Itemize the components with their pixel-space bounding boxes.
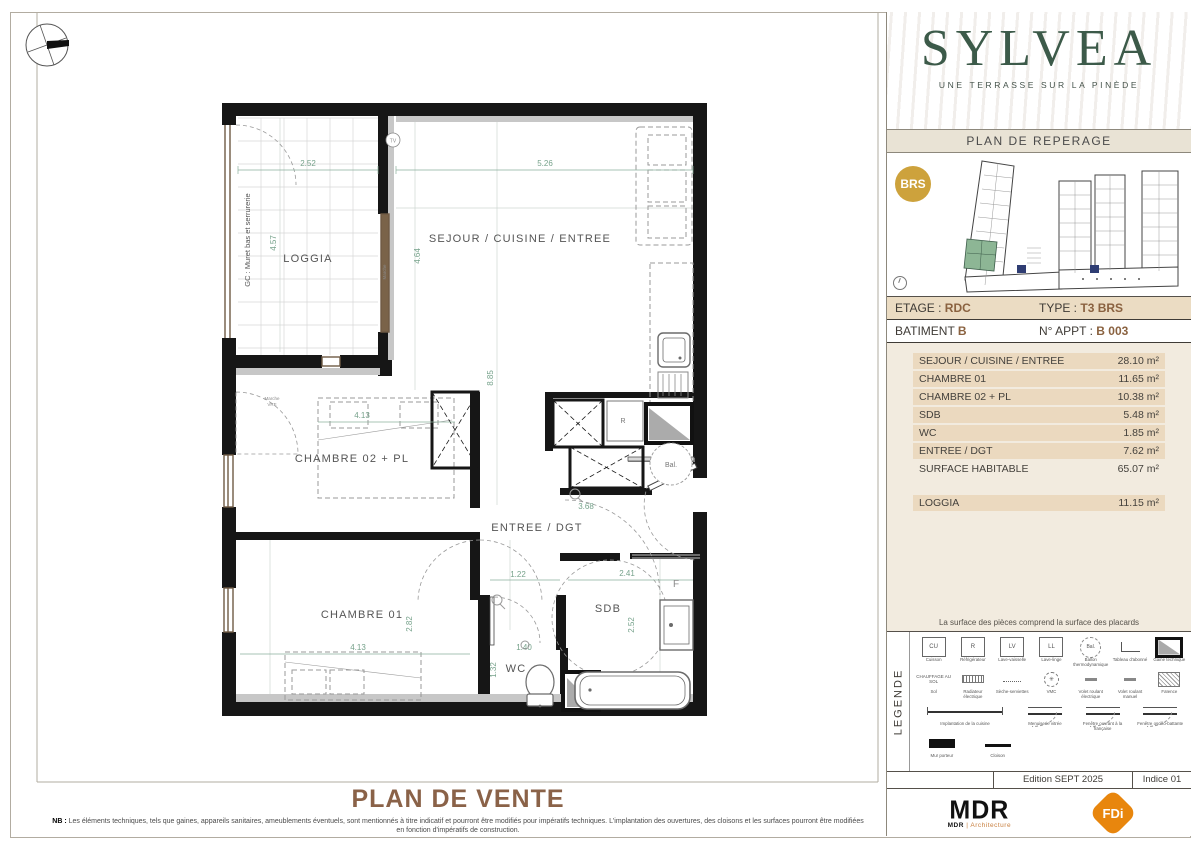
label-f: F bbox=[673, 579, 679, 590]
legend-panel: LEGENDE CUCuisson RRéfrigérateur LVLave-… bbox=[887, 632, 1191, 772]
type-label: TYPE : bbox=[1039, 301, 1077, 315]
label-sdb: SDB bbox=[595, 603, 621, 615]
edition-indice: Indice 01 bbox=[1133, 772, 1191, 788]
dishwasher-icon: LV bbox=[1000, 637, 1024, 657]
bed-chambre02 bbox=[318, 398, 454, 498]
batiment-label: BATIMENT bbox=[895, 324, 955, 338]
edition-bar: Edition SEPT 2025 Indice 01 bbox=[887, 772, 1191, 789]
mdr-logo-mark: MDR bbox=[948, 797, 1011, 822]
fdi-logo: FDi bbox=[1089, 789, 1137, 837]
bottom-strip: PLAN DE VENTE NB : Les éléments techniqu… bbox=[38, 783, 878, 835]
table-row: WC1.85 m² bbox=[913, 425, 1165, 441]
dim-wc-h: 1.32 bbox=[489, 662, 498, 678]
partition-icon bbox=[985, 744, 1011, 747]
miniplan-drawing bbox=[887, 153, 1189, 294]
dim-loggia-h: 4.57 bbox=[269, 235, 278, 251]
nb-note: NB : Les éléments techniques, tels que g… bbox=[38, 817, 878, 835]
table-row-total: SURFACE HABITABLE65.07 m² bbox=[913, 461, 1165, 477]
shutter-electric-icon bbox=[1085, 678, 1097, 681]
brs-badge: BRS bbox=[895, 166, 931, 202]
etage-type-row: ETAGE : RDC TYPE : T3 BRS bbox=[887, 297, 1191, 320]
misc-symbols bbox=[492, 489, 583, 649]
sheet-title: PLAN DE VENTE bbox=[38, 785, 878, 814]
radiator-icon bbox=[962, 675, 984, 683]
dim-sejour-h2: 8.85 bbox=[486, 370, 495, 386]
plan-frame bbox=[37, 12, 878, 782]
floorplan-drawing: LOGGIA SEJOUR / CUISINE / ENTREE CHAMBRE… bbox=[0, 0, 884, 848]
loggia-tiles bbox=[238, 118, 378, 355]
sanitary bbox=[526, 600, 693, 709]
type-value: T3 BRS bbox=[1080, 301, 1123, 315]
loggia-railing bbox=[225, 125, 230, 338]
glazing-icon bbox=[1028, 707, 1062, 715]
dim-ch1-w: 4.13 bbox=[350, 643, 366, 652]
label-fridge: R bbox=[620, 418, 625, 425]
washer-icon: LL bbox=[1039, 637, 1063, 657]
dim-kitchen: 3.68 bbox=[578, 502, 594, 511]
table-row: CHAMBRE 02 + PL10.38 m² bbox=[913, 389, 1165, 405]
kitchen bbox=[650, 263, 693, 403]
tv-outlet-icon: TV bbox=[386, 133, 400, 147]
label-wc: WC bbox=[506, 663, 527, 675]
etage-label: ETAGE : bbox=[895, 301, 941, 315]
window-french-icon bbox=[1086, 707, 1120, 715]
water-heater-icon: Bal. bbox=[1080, 637, 1101, 658]
label-marche1: Marche bbox=[264, 396, 280, 401]
table-row: SEJOUR / CUISINE / ENTREE28.10 m² bbox=[913, 353, 1165, 369]
dim-sejour-w: 5.26 bbox=[537, 159, 553, 168]
nb-line2: en fonction d'impératifs de construction… bbox=[396, 827, 519, 834]
north-arrow-icon bbox=[26, 24, 69, 66]
batiment-appt-row: BATIMENT B N° APPT : B 003 bbox=[887, 320, 1191, 343]
sofa bbox=[636, 127, 692, 245]
edition-empty-cell bbox=[887, 772, 994, 788]
windows bbox=[224, 125, 700, 632]
label-sejour: SEJOUR / CUISINE / ENTREE bbox=[429, 233, 611, 245]
label-chambre01: CHAMBRE 01 bbox=[321, 609, 403, 621]
legend-row-2: CHAUFFAGE AU SOLSol Radiateur électrique… bbox=[914, 668, 1189, 700]
dim-wc-w: 1.40 bbox=[516, 643, 532, 652]
brand-name: SYLVEA bbox=[887, 20, 1191, 78]
dim-sejour-h1: 4.64 bbox=[413, 248, 422, 264]
etage-value: RDC bbox=[945, 301, 971, 315]
dim-entree-2: 2.41 bbox=[619, 569, 635, 578]
window-tilt-icon bbox=[1143, 707, 1177, 715]
legend-title: LEGENDE bbox=[892, 668, 904, 735]
surface-table: SEJOUR / CUISINE / ENTREE28.10 m² CHAMBR… bbox=[887, 343, 1191, 632]
bed-chambre01 bbox=[285, 652, 421, 700]
table-row-loggia: LOGGIA11.15 m² bbox=[913, 495, 1165, 511]
dim-ch1-h: 2.82 bbox=[405, 616, 414, 632]
nb-label: NB : bbox=[52, 818, 66, 825]
label-marche2: VRE bbox=[267, 402, 276, 407]
info-sidebar: SYLVEA UNE TERRASSE SUR LA PINÈDE PLAN D… bbox=[886, 12, 1191, 836]
cooktop-icon: CU bbox=[922, 637, 946, 657]
logos-row: MDR MDR | Architecture FDi bbox=[887, 789, 1191, 837]
table-row: SDB5.48 m² bbox=[913, 407, 1165, 423]
nb-line1: Les éléments techniques, tels que gaines… bbox=[69, 818, 864, 825]
surface-note: La surface des pièces comprend la surfac… bbox=[887, 618, 1191, 627]
label-chambre02: CHAMBRE 02 + PL bbox=[295, 453, 409, 465]
brand-tagline: UNE TERRASSE SUR LA PINÈDE bbox=[887, 80, 1191, 90]
floor-heating-icon: CHAUFFAGE AU SOL bbox=[915, 674, 952, 684]
legend-row-3: Implantation de la cuisine Menuiserie vi… bbox=[914, 700, 1189, 732]
label-loggia: LOGGIA bbox=[283, 253, 332, 265]
appt-label: N° APPT : bbox=[1039, 324, 1093, 338]
dim-entree-1: 1.22 bbox=[510, 570, 526, 579]
table-row: ENTREE / DGT7.62 m² bbox=[913, 443, 1165, 459]
tiling-icon bbox=[1158, 672, 1180, 687]
label-ballon: Bal. bbox=[665, 462, 677, 469]
brand-header: SYLVEA UNE TERRASSE SUR LA PINÈDE bbox=[887, 12, 1191, 130]
plan-de-vente-sheet: LOGGIA SEJOUR / CUISINE / ENTREE CHAMBRE… bbox=[0, 0, 1200, 848]
duct-icon bbox=[1155, 637, 1183, 658]
electrical-panel-icon bbox=[1121, 642, 1140, 652]
legend-row-4: Mur porteur Cloison bbox=[914, 732, 1189, 759]
batiment-value: B bbox=[958, 324, 967, 338]
towel-dryer-icon bbox=[1003, 677, 1021, 682]
edition-date: Edition SEPT 2025 bbox=[994, 772, 1133, 788]
load-wall-icon bbox=[929, 739, 955, 748]
mdr-logo: MDR MDR | Architecture bbox=[948, 798, 1011, 829]
dim-sdb-h: 2.52 bbox=[627, 617, 636, 633]
dim-loggia-w: 2.52 bbox=[300, 159, 316, 168]
legend-row-1: CUCuisson RRéfrigérateur LVLave-vaissell… bbox=[914, 636, 1189, 668]
shutter-manual-icon bbox=[1124, 678, 1136, 681]
fridge-icon: R bbox=[961, 637, 985, 657]
label-gc: GC : Muret bas et serrurerie bbox=[243, 193, 252, 286]
reperage-title: PLAN DE REPERAGE bbox=[887, 130, 1191, 153]
dim-ch2-w: 4.13 bbox=[354, 411, 370, 420]
vmc-icon: ✳ bbox=[1044, 672, 1059, 687]
table-row: CHAMBRE 0111.65 m² bbox=[913, 371, 1165, 387]
location-miniplan: BRS bbox=[887, 153, 1191, 297]
table-gap bbox=[913, 479, 1165, 493]
label-entree: ENTREE / DGT bbox=[491, 522, 582, 534]
svg-text:TV: TV bbox=[390, 139, 397, 145]
dimension-icon bbox=[927, 707, 1003, 715]
label-marche-loggia: Marche bbox=[382, 264, 387, 280]
appt-value: B 003 bbox=[1096, 324, 1128, 338]
mini-compass-icon bbox=[893, 276, 907, 290]
